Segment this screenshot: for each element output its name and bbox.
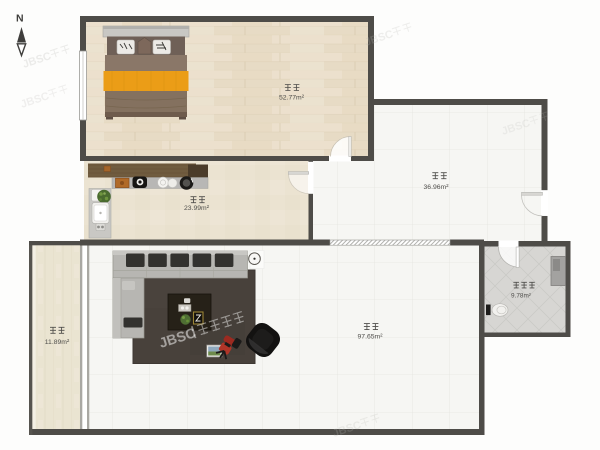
- svg-text:52.77m²: 52.77m²: [279, 95, 305, 102]
- svg-text:11.89m²: 11.89m²: [45, 339, 70, 346]
- svg-text:97.65m²: 97.65m²: [358, 334, 384, 341]
- svg-text:23.99m²: 23.99m²: [184, 205, 210, 212]
- svg-text:9.78m²: 9.78m²: [511, 293, 531, 300]
- svg-text:36.96m²: 36.96m²: [424, 184, 450, 191]
- svg-text:N: N: [16, 13, 24, 25]
